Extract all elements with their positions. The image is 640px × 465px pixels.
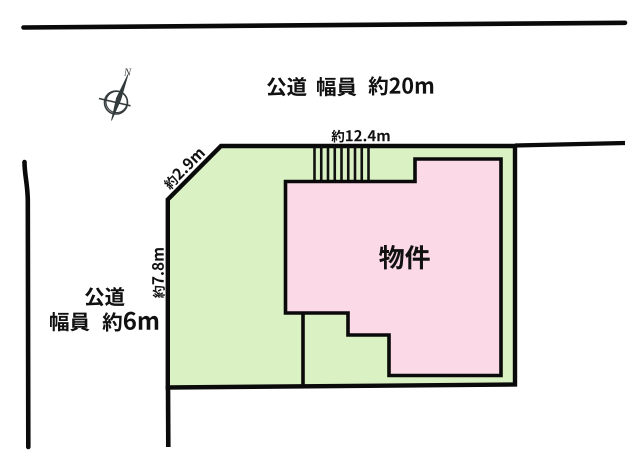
svg-text:N: N [123, 67, 132, 79]
